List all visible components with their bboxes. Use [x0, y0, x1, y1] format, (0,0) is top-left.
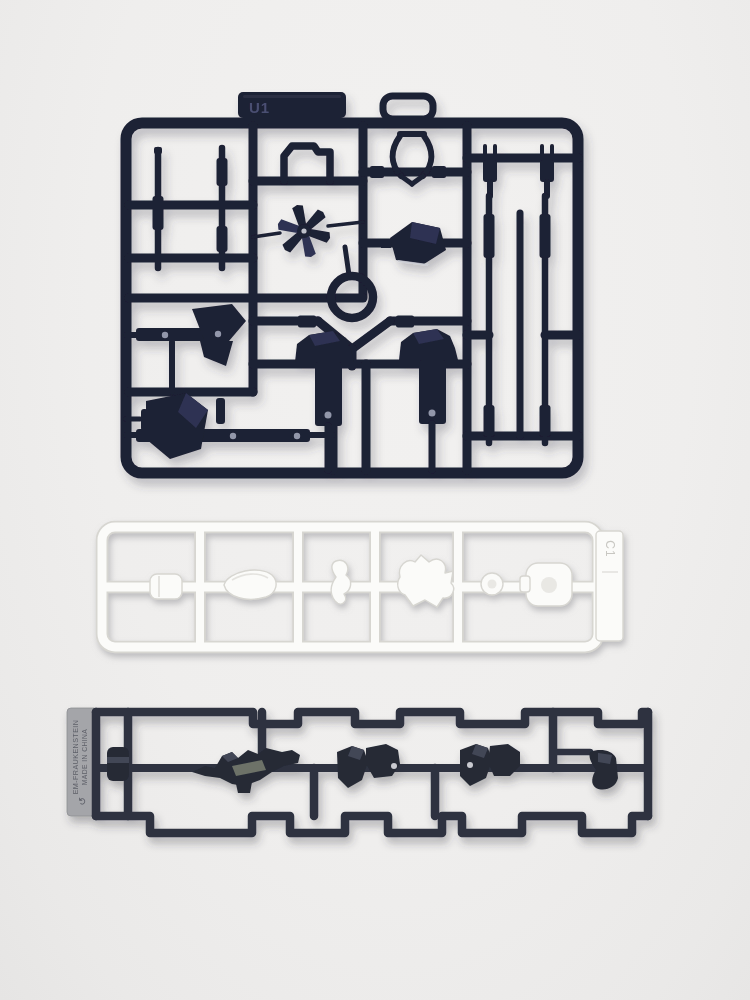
white-crab-part: [398, 555, 454, 607]
charcoal-sprue: EM-FRAUKENSTEIN MADE IN CHINA ↺: [67, 708, 648, 833]
gun-head-part-d: [399, 329, 458, 470]
propeller-spoke-part: [276, 203, 331, 258]
origin-label: MADE IN CHINA: [81, 729, 88, 786]
white-cup-part: [520, 563, 572, 606]
bracket-part-b: [136, 393, 310, 459]
black-sprue-handle: [383, 96, 433, 119]
maker-label: EM-FRAUKENSTEIN: [71, 720, 80, 795]
model-kit-sprues-photo: U1: [0, 0, 750, 1000]
white-sprue: C1: [102, 527, 623, 647]
charcoal-cylinder-part: [107, 747, 129, 781]
c1-label: C1: [603, 540, 617, 557]
joint-cluster-part-2: [460, 744, 520, 786]
camera-box-part: [381, 222, 446, 265]
black-sprue: U1: [126, 92, 578, 473]
joint-cluster-part-1: [337, 744, 400, 788]
bridge-part: [284, 146, 330, 181]
gun-head-part-c: [295, 331, 354, 470]
photo-background: U1: [0, 0, 750, 1000]
white-cylinder-part: [150, 574, 182, 599]
mold-symbol-icon: ↺: [77, 797, 88, 806]
white-figure-part: [331, 560, 350, 604]
white-sprue-tab: C1: [596, 531, 623, 641]
bracket-part-a: [136, 304, 246, 366]
u1-label: U1: [249, 99, 270, 116]
white-cuff-part: [481, 573, 503, 595]
black-sprue-tab: U1: [238, 92, 346, 118]
